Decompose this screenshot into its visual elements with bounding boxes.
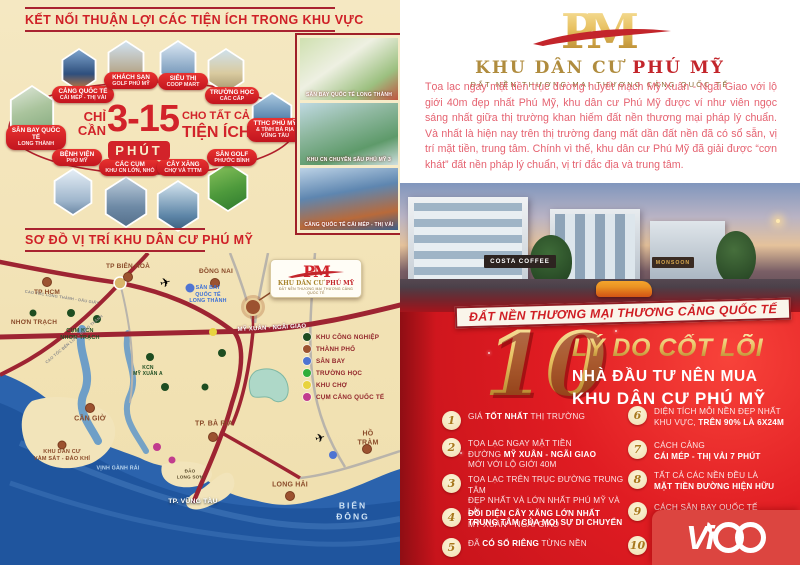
amenity-pill-hotel: KHÁCH SẠNGOLF PHÚ MỸ (104, 72, 158, 89)
map-label-baria: TP. BÀ RỊA (195, 421, 233, 430)
left-panel: KẾT NỐI THUẬN LỢI CÁC TIỆN ÍCH TRONG KHU… (0, 0, 400, 565)
center-cho-tat-ca: CHO TẤT CẢ (182, 110, 250, 122)
brand-title-red: PHÚ MỸ (624, 58, 724, 78)
pill-line: KHU CN LỚN, NHỎ (102, 168, 158, 174)
render-photo: COSTA COFFEE MONSOON (400, 183, 800, 313)
pill-line: GOLF PHÚ MỸ (107, 81, 155, 87)
reason-item-6: 6 DIỆN TÍCH MỖI NỀN ĐẸP NHẤT KHU VỰC, TR… (628, 406, 798, 428)
map-label-bienhoa: TP BIÊN HOÀ (106, 263, 150, 271)
thumbnail-port: CẢNG QUỐC TẾ CÁI MÉP - THỊ VẢI (300, 168, 398, 230)
pill-line: CÁI MÉP - THỊ VẢI (55, 95, 111, 101)
streetlight-glow (776, 219, 780, 223)
ten-heading-1: LÝ DO CỐT LÕI (572, 334, 763, 363)
amenity-pill-market: CÂY XĂNGCHỢ VÀ TTTM (157, 159, 209, 176)
vico-logo: Vi (686, 519, 766, 557)
reason-number: 9 (628, 502, 647, 521)
section-heading-map: SƠ ĐỒ VỊ TRÍ KHU DÂN CƯ PHÚ MỸ (25, 233, 275, 247)
amenity-pill-school: TRƯỜNG HỌCCÁC CẤP (205, 87, 259, 104)
thumbnail-image (300, 168, 398, 230)
map-label-hotram: HỒ TRÀM (352, 430, 384, 448)
pill-line: & TỈNH BÀ RỊA VŨNG TÀU (250, 127, 300, 139)
legend-item: CỤM CẢNG QUỐC TẾ (303, 393, 384, 401)
pill-line: SIÊU THỊ (161, 75, 205, 82)
reason-number: 7 (628, 440, 647, 459)
pill-line: CHỢ VÀ TTTM (160, 168, 206, 174)
amenity-pill-supermarket: SIÊU THỊCOOP MART (158, 73, 208, 90)
legend-item: SÂN BAY (303, 357, 384, 365)
legend-item: THÀNH PHỐ (303, 345, 384, 353)
pill-line: PHƯỚC BÌNH (210, 158, 254, 164)
map-label-nhontrach: NHƠN TRẠCH (11, 319, 57, 327)
center-phut: PHÚT (108, 141, 170, 160)
legend-item: KHU CHỢ (303, 381, 384, 389)
map-label-biendong: BIỂN ĐÔNG (330, 500, 377, 521)
reason-number: 10 (628, 536, 647, 555)
pill-line: SÂN BAY QUỐC TẾ (9, 127, 63, 141)
map-label-vinhganhrai: VỊNH GÀNH RÁI (97, 466, 140, 473)
pill-line: COOP MART (161, 82, 205, 88)
pill-line: PHÚ MỸ (55, 158, 99, 164)
reason-number: 8 (628, 470, 647, 489)
map-label-sanbay-longthanh: SÂN BAY QUỐC TẾ LONG THÀNH (189, 285, 226, 305)
brand-title-gold: KHU DÂN CƯ (475, 58, 624, 78)
legend-dot-industry (303, 333, 311, 341)
photo-building-right (650, 221, 725, 283)
legend-label: TRƯỜNG HỌC (316, 370, 362, 377)
legend-dot-port (303, 393, 311, 401)
intro-paragraph: Tọa lạc ngay mặt tiền trục đường huyết m… (425, 80, 777, 173)
ten-heading-2: NHÀ ĐẦU TƯ NÊN MUA (572, 368, 758, 386)
legend-dot-market (303, 381, 311, 389)
map-label-longhai: LONG HẢI (272, 482, 308, 491)
swoosh-icon (533, 26, 671, 46)
divider (25, 228, 205, 230)
callout-title-red: PHÚ MỸ (326, 280, 354, 287)
red-section: ĐẤT NỀN THƯƠNG MẠI THƯƠNG CẢNG QUỐC TẾ 1… (400, 312, 800, 565)
section-heading-amenities: KẾT NỐI THUẬN LỢI CÁC TIỆN ÍCH TRONG KHU… (25, 13, 365, 27)
map-label-cangio: CẦN GIỜ (74, 416, 106, 425)
reason-item-4: 4 ĐỐI DIỆN CÂY XĂNG LỚN NHẤT MỸ XUÂN - N… (442, 508, 622, 530)
thumbnail-strip: SÂN BAY QUỐC TẾ LONG THÀNH KHU CN CHUYÊN… (295, 33, 403, 235)
costa-coffee-sign: COSTA COFFEE (484, 255, 556, 268)
reason-number: 5 (442, 538, 461, 557)
map-label-kcn-myxuana: KCN MỸ XUÂN A (133, 365, 163, 378)
callout-tagline: ĐẤT NỀN THƯƠNG MẠI THƯƠNG CẢNG QUỐC TẾ (274, 287, 358, 295)
thumbnail-image (300, 103, 398, 165)
thumbnail-industrial-park: KHU CN CHUYÊN SÂU PHÚ MỸ 3 (300, 103, 398, 165)
monsoon-sign: MONSOON (652, 257, 694, 268)
swoosh-icon (288, 270, 344, 278)
map-label-vungtau: TP. VŨNG TÀU (168, 498, 217, 506)
reason-number: 2 (442, 438, 461, 457)
thumbnail-caption: SÂN BAY QUỐC TẾ LONG THÀNH (300, 92, 398, 98)
thumbnail-airport: SÂN BAY QUỐC TẾ LONG THÀNH (300, 38, 398, 100)
amenity-pill-hospital: BỆNH VIỆNPHÚ MỸ (52, 149, 102, 166)
reason-number: 1 (442, 411, 461, 430)
reason-item-8: 8 TẤT CẢ CÁC NỀN ĐỀU LÀ MẶT TIỀN ĐƯỜNG H… (628, 470, 798, 492)
pm-monogram: PM (561, 4, 639, 56)
reason-number: 6 (628, 406, 647, 425)
legend-label: SÂN BAY (316, 358, 345, 365)
thumbnail-caption: CẢNG QUỐC TẾ CÁI MÉP - THỊ VẢI (300, 222, 398, 228)
callout-title: KHU DÂN CƯ PHÚ MỸ (274, 280, 358, 287)
reason-number: 4 (442, 508, 461, 527)
legend-dot-school (303, 369, 311, 377)
building-windows (414, 203, 522, 283)
amenity-pill-golf: SÂN GOLFPHƯỚC BÌNH (207, 149, 257, 166)
pill-line: CÁC CẤP (208, 96, 256, 102)
right-panel: PM KHU DÂN CƯ PHÚ MỸ ĐẤT NỀN THƯƠNG MẠI … (400, 0, 800, 565)
callout-monogram: PM (274, 262, 358, 280)
map-label-dongnai: ĐỒNG NAI (199, 268, 233, 276)
map-label-vamsat: KHU DÂN CƯ VÀM SÁT - ĐẢO KHỈ (34, 449, 90, 463)
reason-item-7: 7 CÁCH CẢNG CÁI MÉP - THỊ VẢI 7 PHÚT (628, 440, 798, 462)
callout-title-gold: KHU DÂN CƯ (278, 280, 326, 287)
center-minutes: 3-15 (104, 98, 182, 141)
reason-number: 3 (442, 474, 461, 493)
legend-label: KHU CÔNG NGHIỆP (316, 334, 379, 341)
divider (25, 7, 335, 9)
tree (716, 231, 756, 285)
brand-header: PM KHU DÂN CƯ PHÚ MỸ ĐẤT NỀN THƯƠNG MẠI … (400, 4, 800, 89)
legend-item: KHU CÔNG NGHIỆP (303, 333, 384, 341)
legend-dot-airport (303, 357, 311, 365)
legend-label: KHU CHỢ (316, 382, 347, 389)
divider (25, 250, 205, 252)
red-edge-shade (400, 312, 436, 565)
brand-title: KHU DÂN CƯ PHÚ MỸ (400, 58, 800, 78)
location-map: TP HCM TP BIÊN HOÀ ĐỒNG NAI NHƠN TRẠCH C… (0, 253, 400, 565)
map-legend: KHU CÔNG NGHIỆP THÀNH PHỐ SÂN BAY TRƯỜNG… (303, 333, 384, 401)
legend-dot-city (303, 345, 311, 353)
legend-label: THÀNH PHỐ (316, 346, 355, 353)
map-label-longson: ĐẢO LONG SƠN (177, 468, 203, 479)
center-tien-ich: TIỆN ÍCH (182, 124, 250, 142)
center-chi-can: CHỈ CẦN (74, 110, 106, 137)
thumbnail-caption: KHU CN CHUYÊN SÂU PHÚ MỸ 3 (300, 157, 398, 163)
amenity-pill-industry: CÁC CỤMKHU CN LỚN, NHỎ (99, 159, 161, 176)
flyer-page: KẾT NỐI THUẬN LỢI CÁC TIỆN ÍCH TRONG KHU… (0, 0, 800, 565)
map-project-callout: PM KHU DÂN CƯ PHÚ MỸ ĐẤT NỀN THƯƠNG MẠI … (270, 259, 362, 298)
legend-label: CỤM CẢNG QUỐC TẾ (316, 394, 384, 401)
vico-logo-box: Vi (652, 510, 800, 565)
legend-item: TRƯỜNG HỌC (303, 369, 384, 377)
thumbnail-image (300, 38, 398, 100)
divider (25, 30, 335, 32)
reason-item-2: 2 TỌA LẠC NGAY MẶT TIỀN ĐƯỜNG MỸ XUÂN - … (442, 438, 622, 471)
pill-line: LONG THÀNH (9, 141, 63, 147)
reason-item-5: 5 ĐÃ CÓ SỔ RIÊNG TỪNG NỀN (442, 538, 622, 557)
amenity-pill-airport: SÂN BAY QUỐC TẾLONG THÀNH (6, 125, 66, 150)
reason-item-1: 1 GIÁ TỐT NHẤT THỊ TRƯỜNG (442, 411, 622, 430)
photo-building-left (408, 197, 528, 289)
vico-ring-icon (735, 522, 766, 553)
